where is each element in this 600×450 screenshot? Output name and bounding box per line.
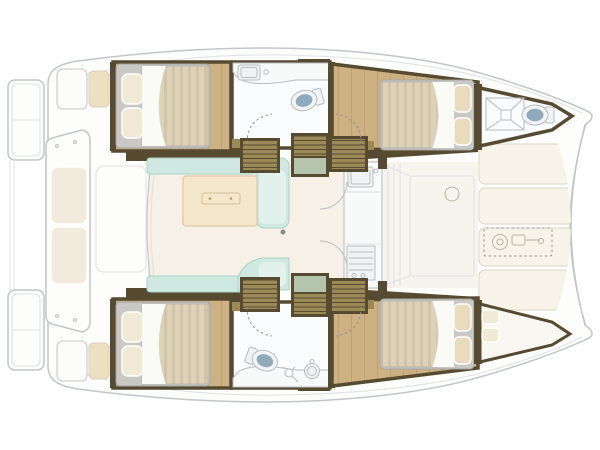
transom-platform-starboard — [8, 290, 44, 370]
port-steps-mid — [294, 136, 326, 156]
bow-head-toilet — [522, 105, 554, 125]
saloon-table — [183, 176, 257, 226]
port-steps-fwd — [332, 139, 365, 169]
sunpad-panel-3 — [479, 228, 573, 266]
settee-leg — [281, 230, 286, 235]
bench-cushion-2 — [51, 227, 87, 284]
bench-cushion-1 — [51, 167, 87, 224]
forepeak-pillow-1 — [482, 310, 499, 324]
stbd-fwd-bed — [380, 299, 474, 369]
galley-stove — [347, 246, 375, 280]
port-steps-landing — [294, 158, 326, 174]
settee-top — [147, 158, 255, 174]
helm-seat-port — [57, 69, 109, 109]
port-aft-bed — [116, 64, 210, 148]
forward-cockpit-floor — [382, 162, 478, 288]
stbd-steps-fwd — [332, 281, 365, 311]
sunpad-panel-4 — [479, 270, 571, 310]
helm-seat-starboard — [57, 341, 109, 381]
stbd-steps-landing — [294, 276, 326, 292]
transom-platform-port — [8, 80, 44, 160]
floor-plan-svg: Catamaran interior layout plan — top vie… — [0, 0, 600, 450]
cockpit-bench — [46, 130, 90, 332]
stbd-steps-mid — [294, 294, 326, 314]
floor-plan-canvas: Catamaran interior layout plan — top vie… — [0, 0, 600, 450]
port-fwd-bed — [380, 80, 474, 150]
stbd-aft-bed — [116, 302, 210, 386]
transom-crossbar-lines — [10, 160, 14, 290]
port-steps-aft — [243, 141, 277, 170]
sunpad-panel-2 — [479, 188, 573, 224]
forepeak-pillow-2 — [482, 328, 499, 342]
sunpad-panel-1 — [479, 144, 571, 184]
stbd-steps-aft — [243, 280, 277, 309]
